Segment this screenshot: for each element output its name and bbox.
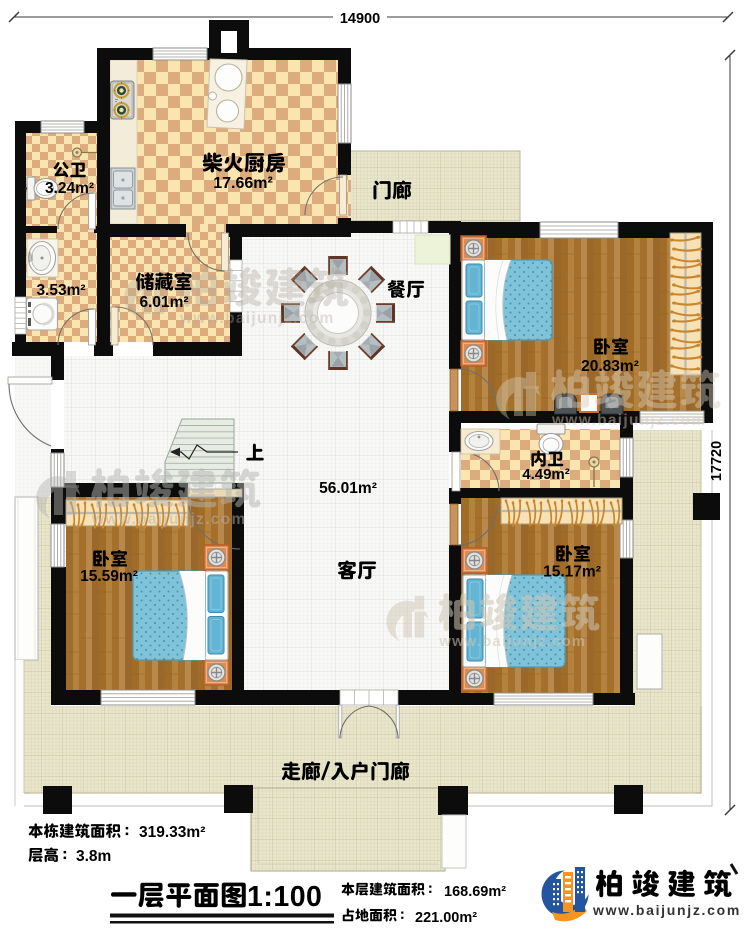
svg-text:17.66m²: 17.66m²	[213, 175, 273, 192]
svg-text:www.baijunjz.com: www.baijunjz.com	[179, 310, 335, 327]
svg-text:6.01m²: 6.01m²	[139, 294, 188, 311]
svg-text:www.baijunjz.com: www.baijunjz.com	[592, 902, 741, 918]
svg-text:1:100: 1:100	[247, 881, 322, 913]
svg-text:15.59m²: 15.59m²	[80, 568, 138, 585]
svg-text:www.baijunjz.com: www.baijunjz.com	[438, 634, 586, 650]
svg-text:168.69m²: 168.69m²	[444, 884, 506, 900]
svg-text:17720: 17720	[709, 441, 725, 481]
svg-text:221.00m²: 221.00m²	[415, 910, 477, 926]
svg-text:4.49m²: 4.49m²	[522, 466, 570, 483]
svg-text:56.01m²: 56.01m²	[319, 480, 377, 497]
svg-text:3.24m²: 3.24m²	[45, 180, 94, 197]
svg-text:14900: 14900	[340, 11, 380, 27]
svg-text:15.17m²: 15.17m²	[543, 564, 601, 581]
svg-text:3.8m: 3.8m	[76, 848, 111, 865]
svg-text:319.33m²: 319.33m²	[139, 824, 205, 841]
svg-text:3.53m²: 3.53m²	[36, 282, 85, 299]
svg-text:www.baijunjz.com: www.baijunjz.com	[91, 511, 247, 528]
svg-text:20.83m²: 20.83m²	[581, 358, 639, 375]
svg-text:www.baijunjz.com: www.baijunjz.com	[551, 412, 707, 429]
